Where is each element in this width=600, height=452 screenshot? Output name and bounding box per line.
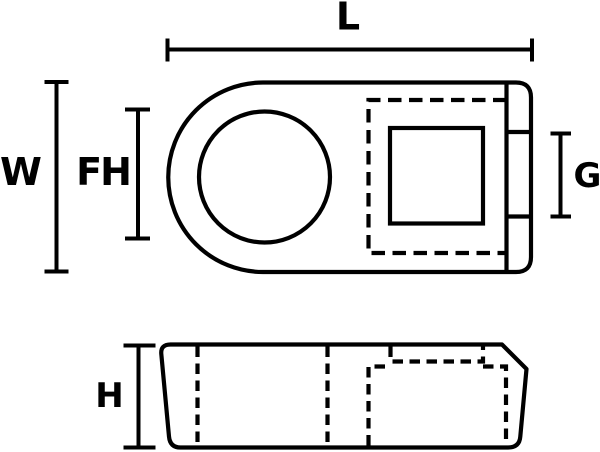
dimension-L: L bbox=[168, 0, 533, 62]
top-view-outline bbox=[168, 83, 531, 273]
dim-label-FH: FH bbox=[76, 150, 130, 194]
side-view-outline bbox=[161, 345, 526, 448]
dim-label-L: L bbox=[336, 0, 360, 39]
technical-drawing-canvas: L W FH G H bbox=[0, 0, 600, 452]
dimension-FH: FH bbox=[76, 110, 150, 239]
dimension-W: W bbox=[0, 82, 68, 272]
side-view bbox=[161, 345, 526, 448]
dimension-G: G bbox=[551, 134, 600, 217]
dim-label-G: G bbox=[574, 156, 600, 196]
dim-label-W: W bbox=[0, 150, 42, 194]
top-view bbox=[168, 83, 531, 273]
round-hole bbox=[199, 112, 330, 243]
hidden-recess-profile bbox=[369, 347, 507, 446]
dimension-drawing: L W FH G H bbox=[0, 0, 600, 452]
dim-label-H: H bbox=[95, 376, 123, 416]
square-hole bbox=[390, 128, 483, 224]
dimension-H: H bbox=[95, 346, 155, 448]
